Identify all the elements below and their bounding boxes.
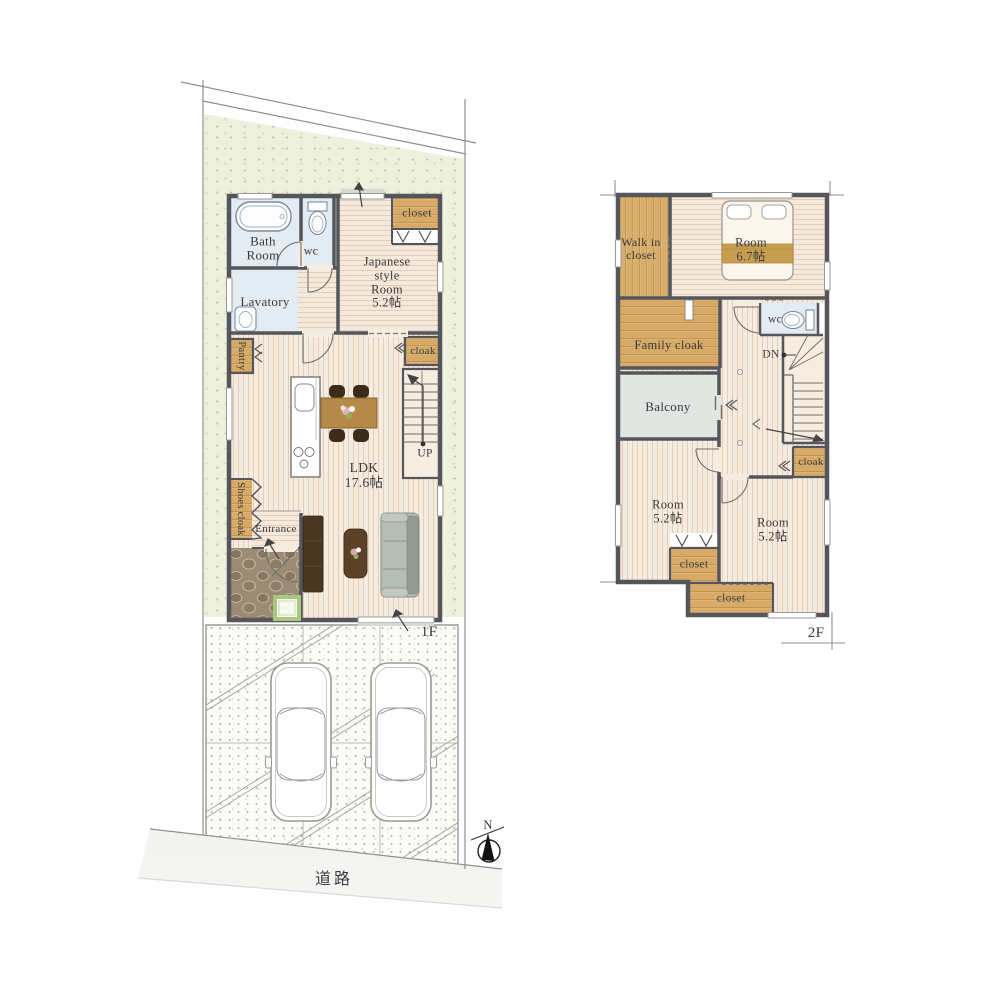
floor2-outside-mask [616,584,687,617]
closet-2f-left-hanger-strip [670,533,718,548]
label-compass-north: N [483,819,492,833]
label-family-cloak: Family cloak [634,339,703,353]
stairs-1f-floor [403,369,440,478]
label-floor1: 1F [421,624,437,641]
wc-2f-shaft [818,303,827,335]
label-closet-1f: closet [402,206,432,219]
label-wc-2f: wc [768,314,782,327]
road-surface [0,0,1000,1000]
label-stairs-up: UP [417,448,432,461]
hall-floor [298,268,340,333]
label-road: 道路 [315,871,353,889]
label-cloak-2f: cloak [798,456,823,468]
closet-1f-hanger-strip [392,229,440,244]
label-wc-1f: wc [304,244,319,257]
label-room-right: Room 5.2帖 [757,516,789,544]
family-cloak-cabinet [618,298,720,368]
label-lavatory: Lavatory [240,295,289,309]
label-room-left: Room 5.2帖 [652,498,684,526]
label-room-6-7: Room 6.7帖 [735,236,767,264]
label-ldk: LDK 17.6帖 [345,461,384,491]
entrance-stone-floor [229,548,301,620]
label-japanese-room: Japanese style Room 5.2帖 [358,256,416,311]
label-floor2: 2F [808,625,824,642]
label-stairs-down: DN [762,349,779,362]
label-pantry: Pantry [235,341,247,370]
floorplan-canvas: Bath Room wc closet Japanese style Room … [0,0,1000,1000]
label-walk-in-closet: Walk in closet [615,236,667,262]
stairs-2f-floor [783,335,823,443]
label-cloak-1f: cloak [410,345,435,357]
label-closet-2f-left: closet [680,559,709,572]
label-shoes-cloak: Shoes cloak [234,482,246,536]
label-bath-room: Bath Room [238,235,288,264]
label-closet-2f-bottom: closet [717,593,746,606]
label-entrance: Entrance [255,523,297,535]
label-balcony: Balcony [645,400,690,414]
